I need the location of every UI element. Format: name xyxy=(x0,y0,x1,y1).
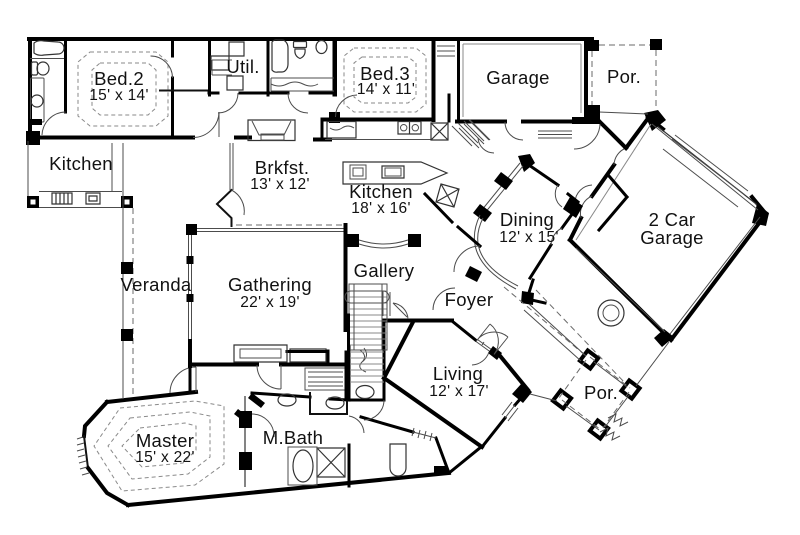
svg-text:Brkfst.: Brkfst. xyxy=(255,157,310,178)
svg-text:18' x 16': 18' x 16' xyxy=(351,200,410,217)
svg-text:Bed.2: Bed.2 xyxy=(94,68,144,89)
svg-text:15' x 22': 15' x 22' xyxy=(135,449,194,466)
svg-text:13' x 12': 13' x 12' xyxy=(250,176,309,193)
svg-text:Garage: Garage xyxy=(486,67,550,88)
svg-text:Util.: Util. xyxy=(226,56,259,77)
svg-text:Kitchen: Kitchen xyxy=(49,153,113,174)
svg-text:M.Bath: M.Bath xyxy=(263,427,323,448)
svg-text:Kitchen: Kitchen xyxy=(349,181,413,202)
svg-text:Gathering: Gathering xyxy=(228,274,312,295)
svg-text:14' x 11': 14' x 11' xyxy=(357,81,415,98)
svg-text:Master: Master xyxy=(136,430,194,451)
svg-text:12' x 15': 12' x 15' xyxy=(499,229,558,246)
svg-text:Gallery: Gallery xyxy=(354,260,415,281)
svg-text:Living: Living xyxy=(433,363,483,384)
svg-text:Garage: Garage xyxy=(640,227,704,248)
svg-text:15' x 14': 15' x 14' xyxy=(89,87,148,104)
svg-text:22' x 19': 22' x 19' xyxy=(240,294,299,311)
svg-text:Foyer: Foyer xyxy=(445,289,494,310)
svg-text:Dining: Dining xyxy=(500,209,554,230)
svg-text:Por.: Por. xyxy=(584,382,618,403)
svg-text:Veranda: Veranda xyxy=(120,274,191,295)
svg-text:12' x 17': 12' x 17' xyxy=(429,383,488,400)
svg-text:Por.: Por. xyxy=(607,66,641,87)
